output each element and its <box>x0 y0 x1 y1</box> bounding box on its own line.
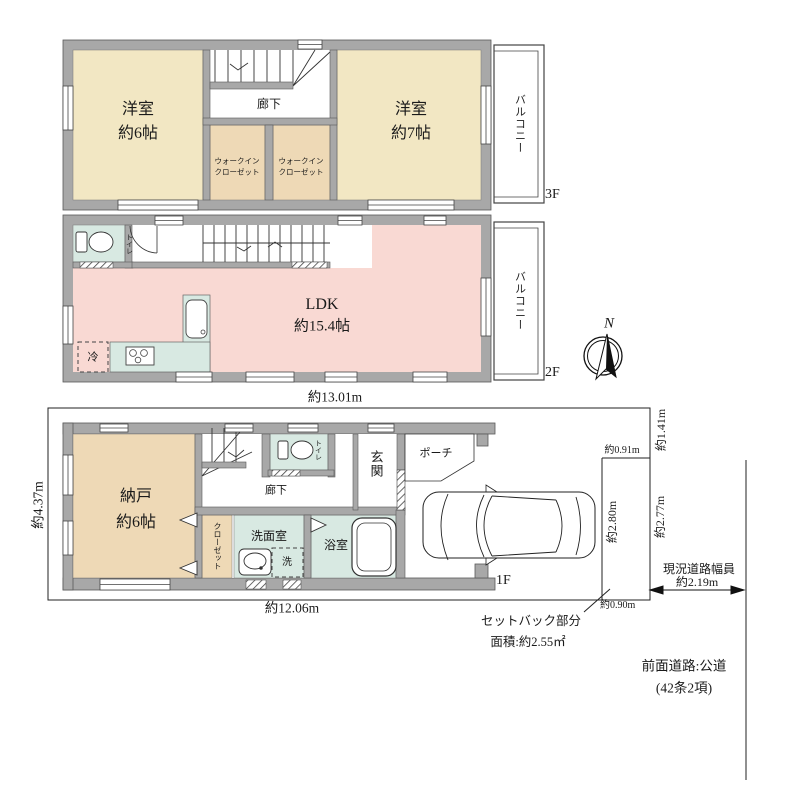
f2-width-dimension: 約13.01m <box>308 390 362 404</box>
f1-entrance-label: 玄関 <box>370 450 383 478</box>
f3-wic-east-label-1: ウォークイン <box>279 157 324 165</box>
entrance-door <box>397 470 405 510</box>
road-width-value: 約2.19m <box>676 576 718 588</box>
compass-north-label: N <box>604 317 614 332</box>
dim-091: 約0.91m <box>604 446 639 456</box>
front-road-label-2: (42条2項) <box>656 681 712 695</box>
f1-floor-label: 1F <box>496 574 511 588</box>
setback-label-1: セットバック部分 <box>481 615 581 628</box>
washer-label: 洗 <box>282 558 292 568</box>
f3-wic-west-label-2: クローゼット <box>215 168 260 176</box>
washbasin-icon <box>239 549 271 575</box>
car-icon <box>423 485 595 565</box>
dim-090: 約0.90m <box>600 601 635 611</box>
f1-storage-room <box>73 434 195 578</box>
road-width-label: 現況道路幅員 <box>663 563 735 575</box>
setback-label-2: 面積:約2.55㎡ <box>490 636 565 649</box>
f1-storage-size: 約6帖 <box>116 515 156 531</box>
north-compass-icon <box>584 334 622 379</box>
f2-toilet-label: トイレ <box>126 234 133 255</box>
f2-balcony-label: バルコニー <box>514 271 525 331</box>
f2-ldk-label: LDK <box>306 297 339 313</box>
f3-wic-west-label-1: ウォークイン <box>215 157 260 165</box>
dim-141: 約1.41m <box>655 409 667 451</box>
floor-plan-page: 洋室 約6帖 廊下 ウォークイン クローゼット ウォークイン クローゼット 洋室… <box>0 0 800 800</box>
f1-toilet-icon <box>278 441 313 459</box>
f1-porch-label: ポーチ <box>420 449 453 460</box>
floor1-plan <box>63 423 595 590</box>
f1-bathroom-label: 浴室 <box>324 539 348 551</box>
dim-277: 約2.77m <box>654 496 666 538</box>
fridge-label: 冷 <box>88 353 99 364</box>
f3-balcony-label: バルコニー <box>514 94 525 154</box>
f3-room-west-label: 洋室 <box>122 102 154 118</box>
f3-floor-label: 3F <box>545 188 560 202</box>
bathtub-icon <box>352 518 396 576</box>
f1-hallway-label: 廊下 <box>265 486 287 497</box>
f3-room-east-label: 洋室 <box>395 102 427 118</box>
f3-hallway-label: 廊下 <box>257 98 281 110</box>
f3-wic-east-label-2: クローゼット <box>279 168 324 176</box>
front-road-label-1: 前面道路:公道 <box>642 659 727 673</box>
f2-toilet-icon <box>76 232 113 252</box>
f2-ldk-size: 約15.4帖 <box>294 320 350 335</box>
f1-toilet-label: トイレ <box>315 440 322 461</box>
floor2-plan <box>63 215 544 382</box>
f3-room-east-size: 約7帖 <box>391 126 431 142</box>
f1-width-dimension: 約12.06m <box>265 601 319 615</box>
dim-280: 約2.80m <box>606 501 618 543</box>
f1-storage-label: 納戸 <box>120 489 152 505</box>
f3-room-west-size: 約6帖 <box>118 126 158 142</box>
f1-washroom-label: 洗面室 <box>251 530 287 542</box>
f2-floor-label: 2F <box>545 366 560 380</box>
f1-closet-label: クローゼット <box>213 522 221 570</box>
f1-depth-dimension: 約4.37m <box>31 481 45 529</box>
